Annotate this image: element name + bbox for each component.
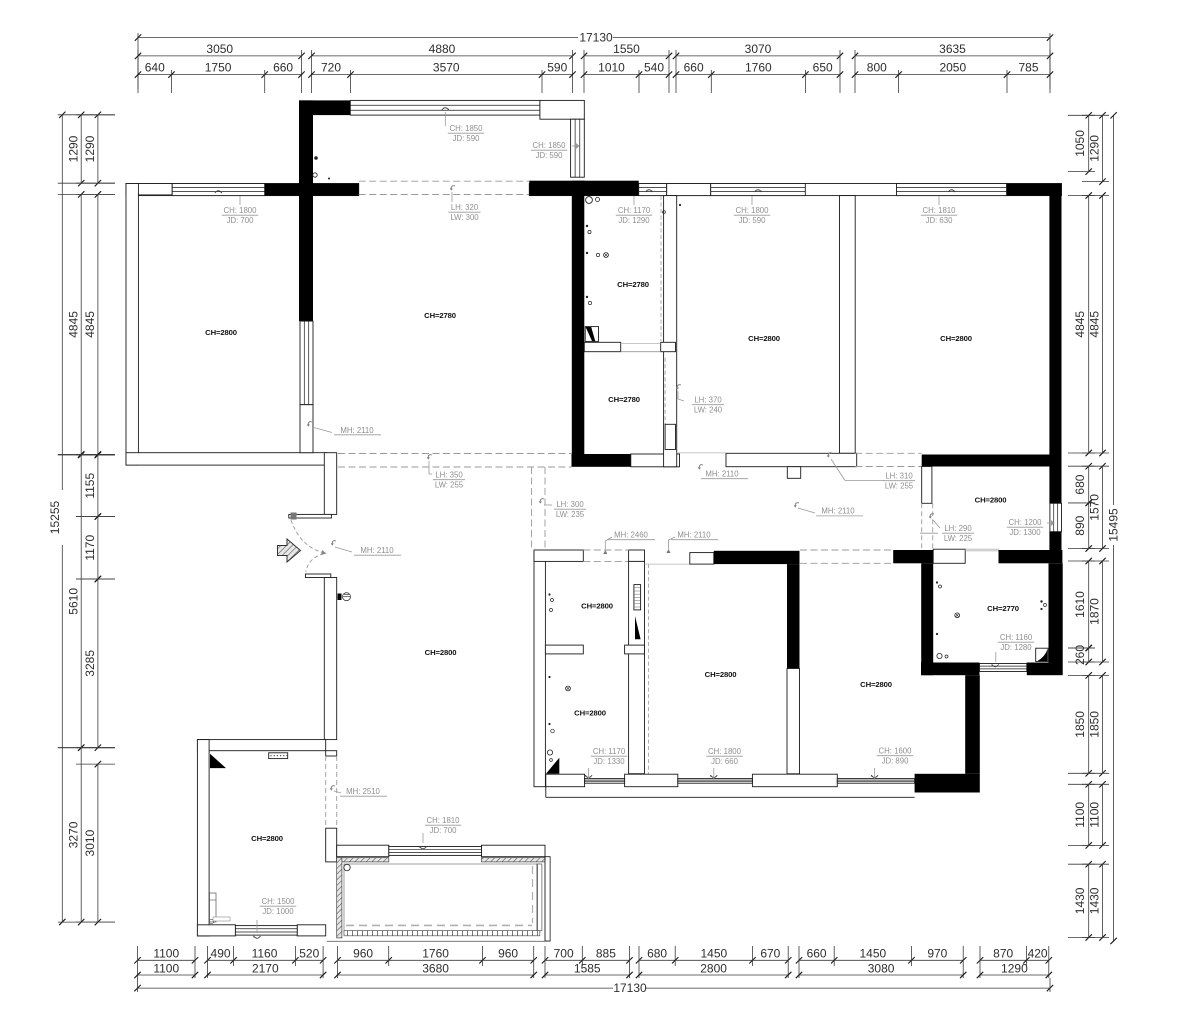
svg-text:590: 590 [547,60,567,74]
svg-text:MH: 2110: MH: 2110 [705,470,739,479]
svg-text:1100: 1100 [1088,802,1102,828]
svg-text:1430: 1430 [1073,887,1087,914]
svg-text:1550: 1550 [613,42,640,56]
svg-text:MH: 2110: MH: 2110 [340,426,374,435]
svg-text:LW: 255: LW: 255 [885,481,914,490]
svg-text:JD: 1000: JD: 1000 [262,907,294,916]
svg-text:3570: 3570 [433,60,460,74]
svg-text:4845: 4845 [1073,311,1087,338]
svg-text:650: 650 [813,60,833,74]
svg-text:CH=2800: CH=2800 [860,680,892,689]
svg-text:JD: 1290: JD: 1290 [618,216,650,225]
svg-text:1010: 1010 [598,60,625,74]
svg-text:3680: 3680 [422,961,449,975]
svg-text:4845: 4845 [67,311,81,338]
svg-text:1610: 1610 [1073,591,1087,618]
svg-text:720: 720 [321,60,341,74]
svg-text:JD: 590: JD: 590 [739,216,767,225]
svg-text:4845: 4845 [83,311,97,338]
svg-text:1850: 1850 [1088,711,1102,738]
svg-text:15495: 15495 [1107,508,1121,542]
svg-text:CH: 1800: CH: 1800 [736,206,770,215]
svg-text:890: 890 [1073,515,1087,535]
svg-text:JD: 630: JD: 630 [926,216,954,225]
svg-text:CH: 1170: CH: 1170 [593,747,626,756]
svg-text:MH: 2460: MH: 2460 [614,531,648,540]
svg-text:520: 520 [299,947,319,961]
svg-text:1050: 1050 [1073,130,1087,157]
svg-text:CH: 1800: CH: 1800 [224,206,258,215]
svg-text:1160: 1160 [252,947,278,961]
svg-text:3080: 3080 [868,961,895,975]
svg-text:LH: 300: LH: 300 [556,500,584,509]
svg-text:17130: 17130 [579,30,613,44]
svg-text:CH: 1800: CH: 1800 [708,747,742,756]
svg-text:1750: 1750 [205,60,232,74]
svg-text:CH=2780: CH=2780 [424,311,456,320]
svg-text:1450: 1450 [700,947,727,961]
svg-text:JD: 1330: JD: 1330 [593,757,625,766]
svg-text:CH: 1200: CH: 1200 [1009,518,1043,527]
svg-text:660: 660 [684,60,704,74]
svg-text:1170: 1170 [83,535,97,561]
svg-text:MH: 2110: MH: 2110 [821,507,855,516]
svg-text:885: 885 [596,947,616,961]
svg-text:680: 680 [647,947,667,961]
svg-text:JD: 660: JD: 660 [711,757,739,766]
svg-text:LH: 350: LH: 350 [435,471,463,480]
svg-text:1570: 1570 [1088,494,1102,521]
svg-text:540: 540 [644,60,664,74]
svg-text:970: 970 [927,947,947,961]
svg-text:1450: 1450 [859,947,886,961]
svg-text:420: 420 [1028,947,1048,961]
svg-text:785: 785 [1018,60,1038,74]
svg-text:1290: 1290 [83,135,97,162]
svg-text:870: 870 [993,947,1013,961]
svg-text:LH: 290: LH: 290 [944,524,972,533]
svg-text:JD: 590: JD: 590 [453,134,481,143]
svg-text:3070: 3070 [745,42,772,56]
svg-text:1430: 1430 [1088,887,1102,914]
svg-text:CH=2800: CH=2800 [574,709,606,718]
svg-text:MH: 2110: MH: 2110 [360,546,394,555]
svg-text:MH: 2110: MH: 2110 [677,531,711,540]
svg-text:JD: 590: JD: 590 [536,151,564,160]
svg-text:1850: 1850 [1073,711,1087,738]
svg-text:2800: 2800 [700,961,727,975]
svg-text:CH: 1850: CH: 1850 [533,141,567,150]
svg-text:1290: 1290 [67,135,81,162]
svg-text:CH=2780: CH=2780 [608,395,640,404]
svg-text:CH=2770: CH=2770 [987,604,1019,613]
svg-text:CH=2800: CH=2800 [975,495,1007,504]
svg-text:3635: 3635 [939,42,966,56]
svg-text:LW: 235: LW: 235 [556,510,585,519]
svg-text:CH=2780: CH=2780 [617,280,649,289]
svg-text:1760: 1760 [422,947,449,961]
svg-text:3010: 3010 [83,829,97,856]
svg-text:2170: 2170 [252,961,279,975]
svg-text:JD: 890: JD: 890 [882,756,910,765]
svg-text:CH=2800: CH=2800 [581,602,613,611]
svg-text:660: 660 [807,947,827,961]
svg-text:CH=2800: CH=2800 [205,328,237,337]
svg-text:CH: 1160: CH: 1160 [1000,633,1033,642]
svg-text:CH=2800: CH=2800 [425,648,457,657]
svg-text:CH: 1810: CH: 1810 [427,816,461,825]
svg-text:3285: 3285 [83,650,97,677]
svg-text:1100: 1100 [1073,802,1087,828]
svg-text:700: 700 [554,947,574,961]
svg-text:LH: 370: LH: 370 [694,396,722,405]
svg-text:LW: 240: LW: 240 [694,405,723,414]
svg-text:CH=2800: CH=2800 [748,334,780,343]
svg-text:670: 670 [760,947,780,961]
svg-text:4845: 4845 [1088,311,1102,338]
svg-text:CH: 1810: CH: 1810 [923,206,957,215]
svg-text:LH: 320: LH: 320 [451,203,479,212]
svg-text:17130: 17130 [613,981,647,995]
svg-text:680: 680 [1073,474,1087,494]
svg-text:1290: 1290 [1088,135,1102,162]
svg-text:2050: 2050 [939,60,966,74]
svg-text:490: 490 [211,947,231,961]
svg-text:MH: 2510: MH: 2510 [346,787,380,796]
svg-text:1870: 1870 [1088,598,1102,625]
svg-text:JD: 700: JD: 700 [430,826,458,835]
svg-text:JD: 700: JD: 700 [227,216,255,225]
svg-text:15255: 15255 [48,500,62,534]
svg-text:1290: 1290 [1001,961,1028,975]
svg-text:640: 640 [145,60,165,74]
svg-text:CH: 1170: CH: 1170 [618,206,651,215]
svg-text:3050: 3050 [206,42,233,56]
svg-text:CH: 1850: CH: 1850 [450,124,484,133]
svg-text:CH: 1500: CH: 1500 [262,897,296,906]
svg-text:LW: 255: LW: 255 [435,480,464,489]
svg-text:3270: 3270 [67,821,81,848]
svg-text:CH=2800: CH=2800 [251,834,283,843]
svg-text:LW: 300: LW: 300 [450,213,479,222]
svg-text:CH=2800: CH=2800 [940,334,972,343]
svg-text:5610: 5610 [67,588,81,615]
svg-text:4880: 4880 [429,42,456,56]
svg-text:CH: 1600: CH: 1600 [879,747,913,756]
svg-text:1760: 1760 [745,60,772,74]
svg-text:LH: 310: LH: 310 [885,472,913,481]
svg-text:800: 800 [867,60,887,74]
svg-text:960: 960 [498,947,518,961]
svg-text:LW: 225: LW: 225 [944,534,973,543]
svg-text:1155: 1155 [83,473,97,499]
svg-text:1100: 1100 [153,947,179,961]
svg-text:660: 660 [273,60,293,74]
svg-text:JD: 1280: JD: 1280 [1000,643,1032,652]
svg-text:CH=2800: CH=2800 [705,670,737,679]
svg-text:960: 960 [353,947,373,961]
svg-text:JD: 1300: JD: 1300 [1009,528,1041,537]
svg-text:1100: 1100 [153,961,179,975]
svg-text:1585: 1585 [574,961,601,975]
